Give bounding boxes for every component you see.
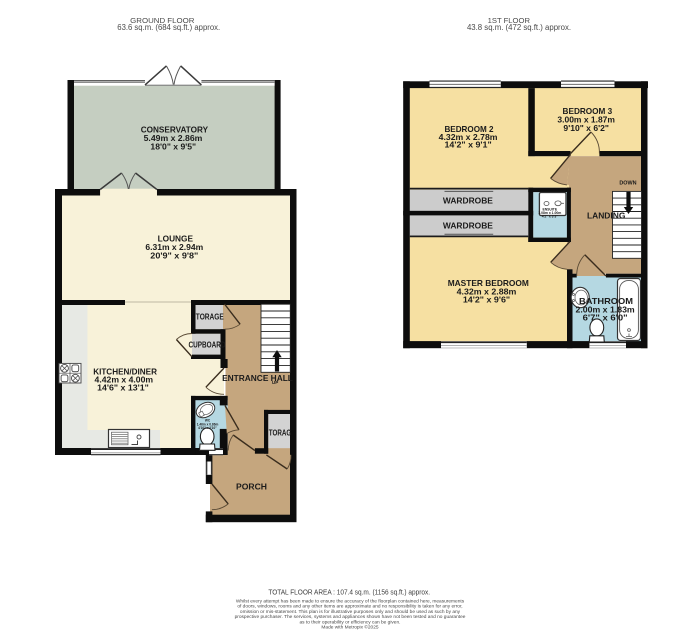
svg-text:14'2" x 9'1": 14'2" x 9'1" <box>445 140 492 150</box>
svg-text:4'10" x 2'10": 4'10" x 2'10" <box>198 426 217 430</box>
svg-text:WARDROBE: WARDROBE <box>443 195 493 205</box>
svg-text:WARDROBE: WARDROBE <box>443 220 493 230</box>
svg-text:omission or mis-statement. Thi: omission or mis-statement. This plan is … <box>240 609 461 615</box>
svg-text:14'2" x 9'6": 14'2" x 9'6" <box>463 294 510 304</box>
svg-text:Whilst every attempt has been: Whilst every attempt has been made to en… <box>236 599 465 605</box>
svg-text:18'0" x 9'5": 18'0" x 9'5" <box>150 142 196 152</box>
svg-text:PORCH: PORCH <box>236 482 267 492</box>
svg-text:TORAGE: TORAGE <box>196 312 224 322</box>
svg-text:DOWN: DOWN <box>619 181 636 187</box>
svg-text:TORAG: TORAG <box>269 428 292 438</box>
svg-text:Made with Metropix ©2025: Made with Metropix ©2025 <box>321 624 378 631</box>
svg-text:43.8 sq.m. (472 sq.ft.) approx: 43.8 sq.m. (472 sq.ft.) approx. <box>467 23 571 32</box>
svg-text:LANDING: LANDING <box>587 210 626 220</box>
svg-text:TOTAL FLOOR AREA : 107.4 sq.m.: TOTAL FLOOR AREA : 107.4 sq.m. (1156 sq.… <box>268 587 430 596</box>
svg-text:UP: UP <box>272 380 278 385</box>
svg-text:6'7" x 6'0": 6'7" x 6'0" <box>583 313 628 323</box>
svg-text:14'6" x 13'1": 14'6" x 13'1" <box>97 382 149 392</box>
svg-text:of doors, windows, rooms and a: of doors, windows, rooms and any other i… <box>237 604 462 610</box>
svg-text:ENTRANCE HALL: ENTRANCE HALL <box>222 373 293 383</box>
svg-text:9'10" x 6'2": 9'10" x 6'2" <box>563 123 609 133</box>
svg-text:4'2" x 3'3": 4'2" x 3'3" <box>542 215 559 219</box>
svg-text:as to their operability or eff: as to their operability or efficiency ca… <box>300 619 401 625</box>
svg-text:prospective purchaser. The ser: prospective purchaser. The services, sys… <box>235 614 466 620</box>
svg-text:CUPBOARD: CUPBOARD <box>189 339 226 349</box>
svg-text:20'9" x 9'8": 20'9" x 9'8" <box>150 251 198 261</box>
svg-text:63.6 sq.m. (684 sq.ft.) approx: 63.6 sq.m. (684 sq.ft.) approx. <box>117 23 220 32</box>
